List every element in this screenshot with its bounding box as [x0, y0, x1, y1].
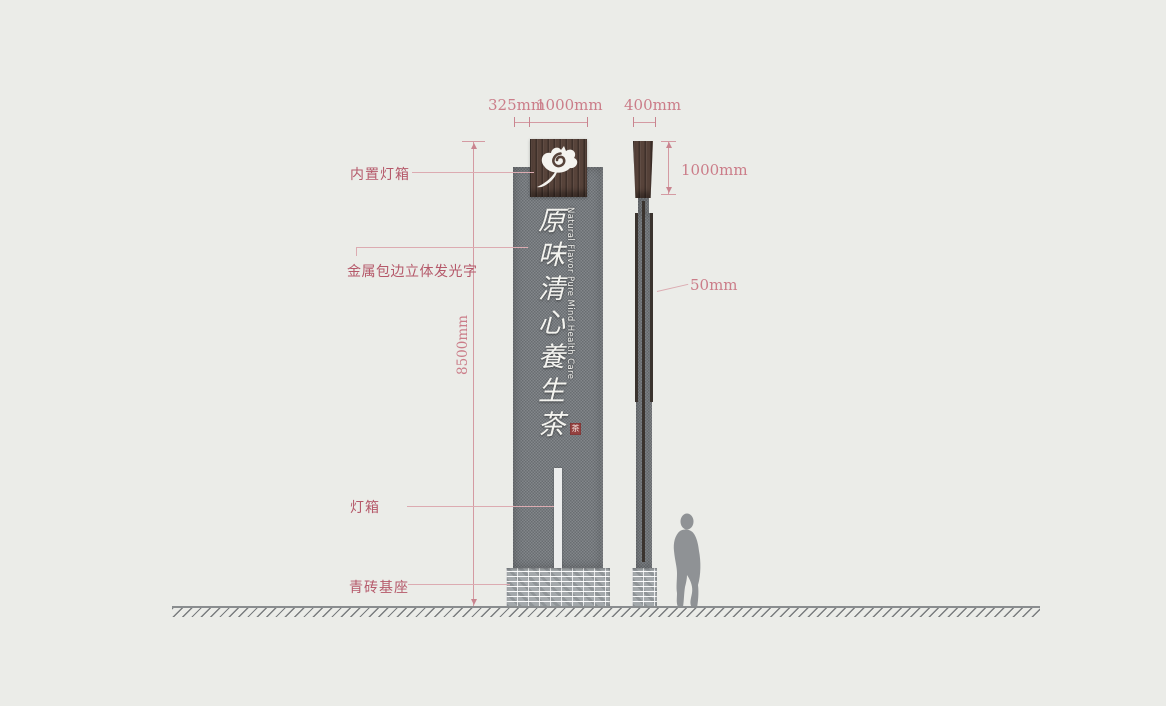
- dim-tick: [587, 117, 588, 127]
- leader-letter-depth: [657, 284, 688, 292]
- label-brick-base: 青砖基座: [349, 577, 409, 597]
- dim-arrow-down: [471, 599, 477, 605]
- leader-built-in-lightbox: [412, 172, 534, 173]
- side-brick-base: [632, 568, 657, 607]
- front-logo-box: [530, 139, 587, 197]
- dim-side-logo-height: 1000mm: [681, 161, 748, 179]
- leader-lightbox: [407, 506, 554, 507]
- human-scale-figure: [667, 512, 709, 611]
- dim-line-front-top: [514, 122, 588, 123]
- seal-stamp: 茶: [570, 423, 581, 435]
- side-edge-left: [635, 213, 638, 402]
- side-edge-right: [650, 213, 653, 402]
- dim-front-logo-width: 1000mm: [536, 96, 603, 114]
- dim-tick: [514, 117, 515, 127]
- dim-letter-depth: 50mm: [690, 276, 738, 294]
- dim-endbar: [462, 141, 485, 142]
- dim-total-height: 8500mm: [455, 317, 471, 375]
- brand-logo-icon: [530, 139, 587, 197]
- dim-side-width: 400mm: [624, 96, 681, 114]
- side-letter-profile: [642, 201, 645, 562]
- dim-endbar: [661, 194, 676, 195]
- dim-tick: [529, 117, 530, 127]
- sign-english-name: Natural Flavor Pure Mind Health Care: [565, 207, 575, 423]
- dim-arrow-up: [666, 142, 672, 148]
- label-metal-edge-letters: 金属包边立体发光字: [347, 261, 478, 281]
- dim-arrow-down: [666, 187, 672, 193]
- sign-chinese-name: 原味清心養生茶: [533, 206, 563, 474]
- side-logo-cap: [633, 141, 653, 198]
- front-brick-base: [506, 568, 610, 607]
- front-lightbox-slot: [554, 468, 562, 568]
- leader-metal-edge-letters-v: [356, 247, 357, 256]
- elevation-drawing: 原味清心養生茶 Natural Flavor Pure Mind Health …: [0, 0, 1166, 706]
- ground-hatch: [172, 608, 1040, 617]
- dim-line-total-height: [473, 142, 474, 606]
- leader-brick-base: [408, 584, 510, 585]
- dim-arrow-up: [471, 143, 477, 149]
- dim-line-side-top: [633, 122, 656, 123]
- dim-tick: [633, 117, 634, 127]
- label-lightbox: 灯箱: [350, 497, 380, 517]
- label-built-in-lightbox: 内置灯箱: [350, 164, 410, 184]
- dim-tick: [655, 117, 656, 127]
- leader-metal-edge-letters-h: [356, 247, 528, 248]
